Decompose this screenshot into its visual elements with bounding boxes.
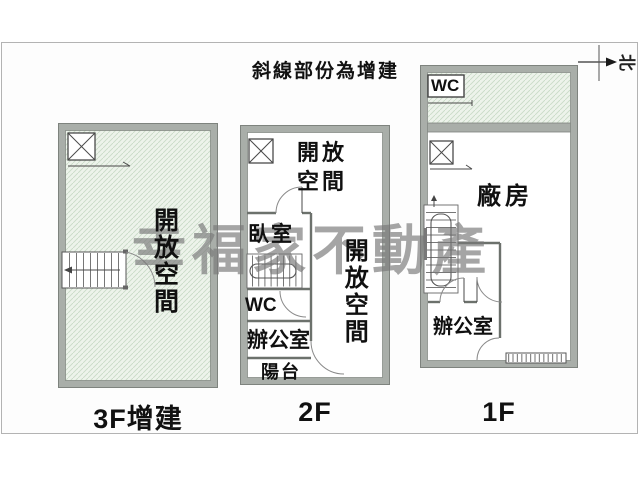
page-root: 斜線部份為增建 北 — [0, 0, 640, 480]
floor-label-3f: 3F增建 — [58, 397, 218, 436]
room-label-open-space-right-2f: 開放空間 — [338, 238, 369, 346]
room-label-factory-1f: 廠房 — [477, 181, 533, 212]
room-label-balcony-2f: 陽台 — [261, 361, 301, 384]
north-arrow-icon: 北 — [572, 42, 638, 86]
room-label-open-space-upper-2f: 開放空間 — [297, 139, 359, 196]
floor-label-2f: 2F — [240, 397, 390, 428]
entrance-sliding-door — [506, 353, 566, 363]
mid-thick-wall — [424, 123, 574, 132]
room-label-wc-2f: WC — [245, 294, 277, 319]
room-label-open-space-3f: 開放空間 — [148, 207, 181, 315]
window-symbol — [249, 139, 273, 163]
room-label-office-1f: 辦公室 — [433, 314, 493, 340]
room-label-office-2f: 辦公室 — [247, 327, 310, 354]
compass-north-label: 北 — [617, 54, 636, 71]
room-label-wc-1f: WC — [431, 75, 459, 97]
note-text: 斜線部份為增建 — [252, 56, 399, 83]
watermark-text: 幸福家不動產 — [132, 206, 492, 285]
floor-label-1f: 1F — [420, 397, 578, 428]
room-label-bedroom-2f: 臥室 — [248, 221, 294, 248]
